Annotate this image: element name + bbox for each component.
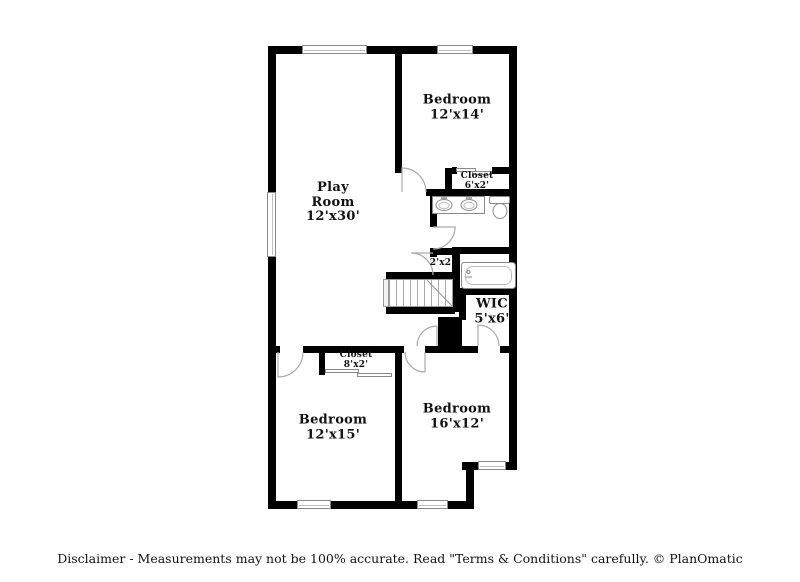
wall-closet6-left — [445, 168, 452, 196]
sink-right — [461, 200, 477, 211]
window-notch-bedroom-right — [478, 461, 506, 470]
wall-tubroom-top — [452, 247, 517, 254]
door-arc-bathroom — [433, 227, 455, 249]
window-top-bedroom — [437, 45, 473, 54]
room-label-closet-top: Closet 6'x2' — [461, 171, 494, 191]
room-name: Bedroom — [423, 93, 491, 108]
room-name: Bedroom — [299, 413, 367, 428]
toilet-bowl — [493, 204, 507, 219]
door-arc-bedroom-top — [402, 168, 426, 192]
window-bottom-bedroom-right — [417, 500, 448, 509]
wall-hall-bedrooms-a — [276, 346, 280, 353]
room-name: Closet — [461, 171, 494, 181]
room-dims: 12'x30' — [306, 210, 360, 225]
wall-bath-left-upper — [430, 196, 437, 227]
wall-exterior-left — [268, 46, 276, 509]
wall-closet6-cap-right — [492, 167, 509, 174]
wall-stairs-top — [386, 272, 459, 279]
bathtub-drain-icon — [467, 270, 470, 273]
room-label-bedroom-top: Bedroom 12'x14' — [423, 93, 491, 122]
wall-stairs-bottom — [386, 307, 455, 314]
wall-exterior-right — [509, 46, 517, 470]
bathtub — [462, 263, 516, 289]
window-bottom-bedroom-left — [297, 500, 331, 509]
wall-tubroom-wic — [459, 288, 517, 295]
room-name: Closet — [340, 350, 373, 360]
room-dims: 6'x2' — [461, 181, 494, 191]
door-arc-bedroom-left — [278, 352, 303, 377]
room-dims: 2'x2' — [430, 258, 454, 268]
vanity-counter — [433, 197, 485, 214]
sink-right-basin — [464, 202, 474, 208]
wall-exterior-notch-left — [466, 462, 474, 509]
bathtub-inner — [466, 267, 512, 285]
wall-hall-bedrooms-c — [425, 346, 478, 353]
window-left-playroom — [267, 192, 276, 257]
sink-left — [436, 200, 452, 211]
room-dims: 5'x6' — [474, 312, 509, 327]
room-dims: 12'x14' — [423, 108, 491, 123]
room-name: WIC — [474, 297, 509, 312]
room-label-wic: WIC 5'x6' — [474, 297, 509, 326]
stairs-treads — [389, 279, 453, 307]
room-dims: 16'x12' — [423, 417, 491, 432]
door-arc-hallway — [417, 326, 437, 346]
wall-bedroom-divider — [395, 352, 402, 501]
door-arc-wic — [478, 325, 499, 346]
door-arc-bedroom-right — [405, 352, 425, 372]
room-dims: 12'x15' — [299, 428, 367, 443]
room-label-bedroom-right: Bedroom 16'x12' — [423, 402, 491, 431]
room-label-closet-2x2: 2'x2' — [430, 258, 454, 268]
chimney-chase — [438, 317, 462, 346]
wall-wic-left — [459, 288, 466, 320]
room-label-closet-bottom: Closet 8'x2' — [340, 350, 373, 370]
room-label-play-room: Play Room 12'x30' — [306, 181, 360, 225]
room-label-bedroom-left: Bedroom 12'x15' — [299, 413, 367, 442]
sliding-door-closet8-b — [357, 373, 392, 377]
wall-playroom-bedroom — [395, 54, 402, 173]
window-top-playroom — [302, 45, 367, 54]
room-dims: 8'x2' — [340, 360, 373, 370]
room-name: Play Room — [309, 181, 357, 210]
disclaimer-text: Disclaimer - Measurements may not be 100… — [0, 551, 800, 566]
sink-left-basin — [439, 202, 449, 208]
room-name: Bedroom — [423, 402, 491, 417]
floor-plan-page: Play Room 12'x30' Bedroom 12'x14' Closet… — [0, 0, 800, 582]
toilet-tank — [490, 197, 510, 204]
wall-hall-bedrooms-d — [500, 346, 517, 353]
